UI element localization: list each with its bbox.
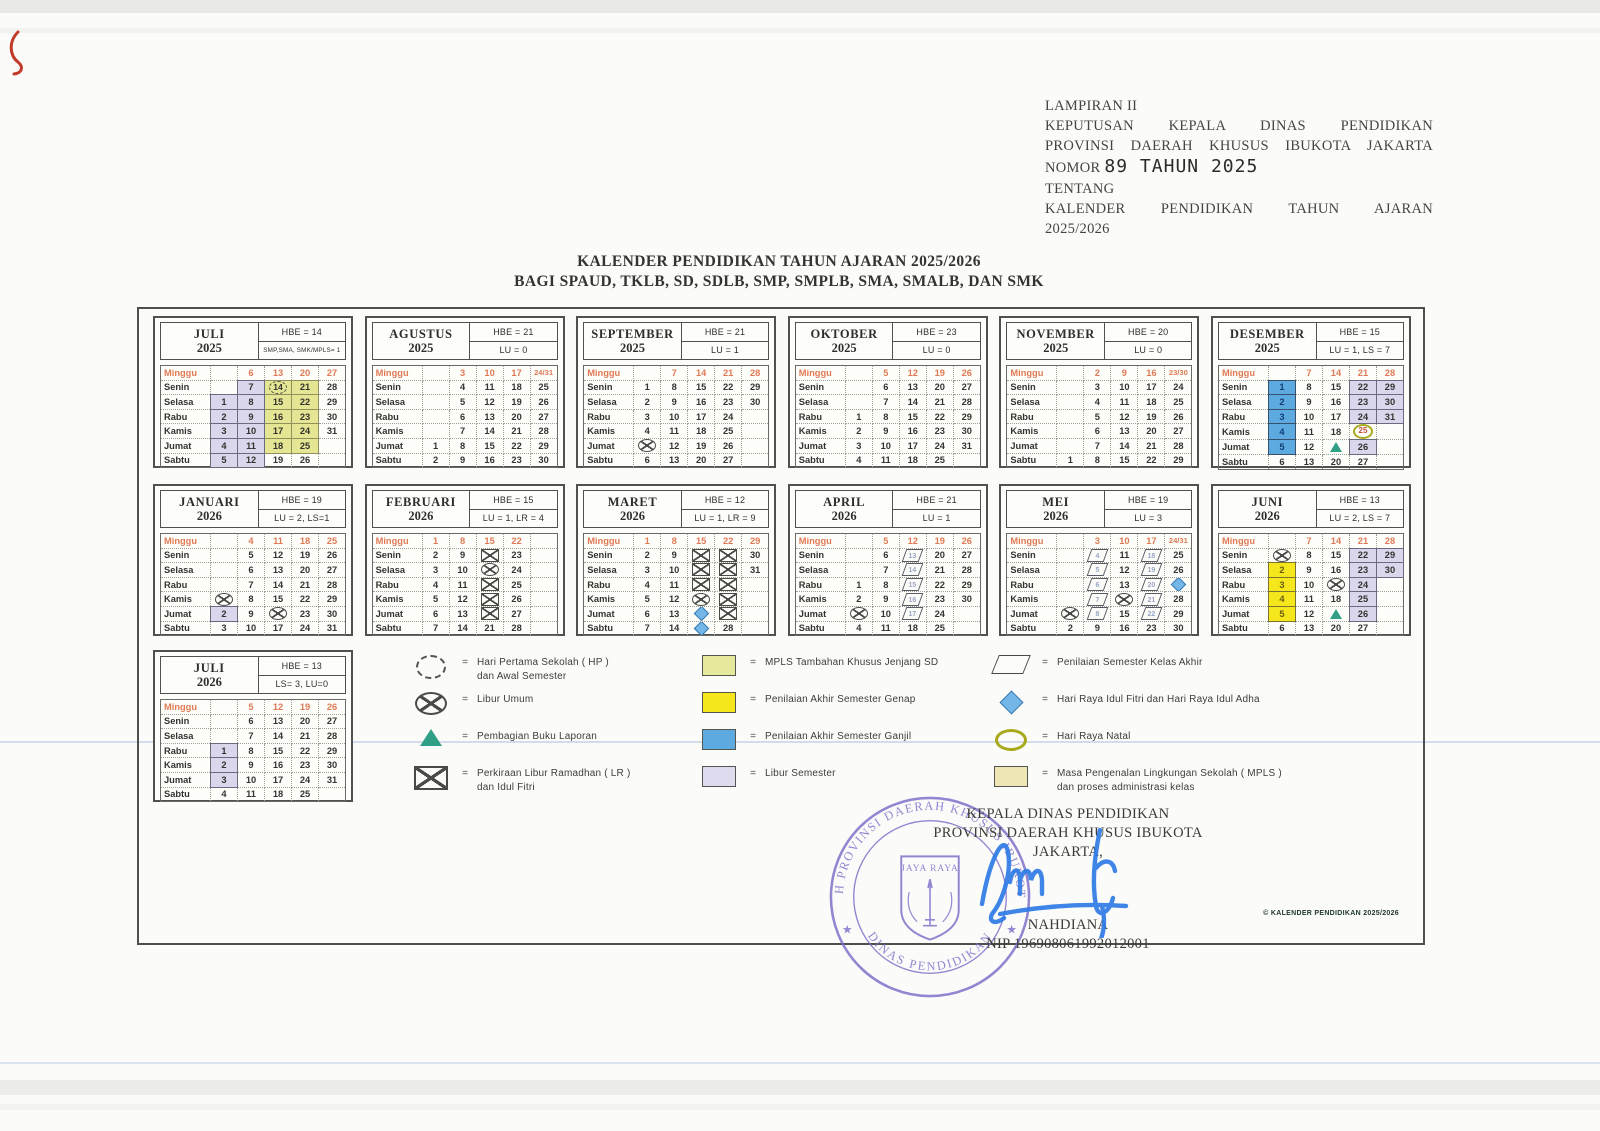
legend-item: =Hari Pertama Sekolah ( HP )dan Awal Sem… <box>409 654 697 691</box>
ramadhan-leave-icon <box>719 549 737 562</box>
day-row-label: Jumat <box>161 606 211 621</box>
month-stats-box: HBE = 21LU = 0 <box>470 323 556 359</box>
legend-icon-box <box>697 765 741 787</box>
month-stat-lu: LU = 1, LR = 4 <box>470 510 556 528</box>
day-cell: 12 <box>265 548 292 563</box>
tentang-line2: 2025/2026 <box>1045 219 1433 239</box>
day-cell <box>530 592 557 607</box>
day-row-selasa: Selasa4111825 <box>1007 395 1192 410</box>
month-stat-lu: LU = 0 <box>470 342 556 360</box>
nomor-value: 89 TAHUN 2025 <box>1104 156 1258 177</box>
day-row-jumat: Jumat51226 <box>1218 606 1403 621</box>
day-cell <box>1376 454 1403 469</box>
month-name-box: AGUSTUS2025 <box>373 323 471 359</box>
month-name: DESEMBER <box>1230 327 1305 341</box>
day-cell <box>319 453 346 468</box>
scan-band <box>0 28 1600 33</box>
final-class-exam-icon: 14 <box>902 563 924 576</box>
day-row-rabu: Rabu18152229 <box>795 409 980 424</box>
day-cell: 5 <box>872 534 899 549</box>
day-row-label: Kamis <box>372 424 422 439</box>
day-cell: 19 <box>926 366 953 381</box>
day-cell: 29 <box>1376 548 1403 563</box>
day-row-minggu: Minggu3101724/31 <box>372 366 557 381</box>
day-row-selasa: Selasa5121926 <box>372 395 557 410</box>
day-cell: 23 <box>1349 563 1376 578</box>
month-stats-box: HBE = 20LU = 0 <box>1105 323 1191 359</box>
day-row-label: Kamis <box>584 424 634 439</box>
month-stats-box: HBE = 15LU = 1, LS = 7 <box>1317 323 1403 359</box>
day-row-rabu: Rabu310172431 <box>1218 409 1403 424</box>
day-cell: 20 <box>503 409 530 424</box>
legend-label: Hari Raya Idul Fitri dan Hari Raya Idul … <box>1057 691 1260 707</box>
month-stat-hbe: HBE = 14 <box>259 323 345 342</box>
day-cell: 31 <box>319 621 346 636</box>
day-cell: 21 <box>476 621 503 636</box>
day-cell: 9 <box>238 409 265 424</box>
day-cell: 15 <box>476 534 503 549</box>
day-row-label: Rabu <box>795 577 845 592</box>
legend-equals: = <box>1033 654 1057 668</box>
month-grid: Minggu5121926Senin6132027Selasa7142128Ra… <box>795 533 981 636</box>
day-cell <box>715 577 742 592</box>
day-cell: 2 <box>422 548 449 563</box>
day-cell: 9 <box>238 758 265 773</box>
day-cell: 4 <box>211 787 238 802</box>
day-cell <box>476 548 503 563</box>
month-stat-hbe: HBE = 21 <box>893 491 979 510</box>
christmas-icon: 25 <box>1353 424 1373 439</box>
day-cell: 28 <box>530 424 557 439</box>
month-name-box: DESEMBER2025 <box>1219 323 1317 359</box>
day-cell <box>530 621 557 636</box>
day-row-label: Rabu <box>372 409 422 424</box>
day-cell: 9 <box>1295 563 1322 578</box>
day-cell <box>688 606 715 621</box>
ramadhan-leave-icon <box>719 607 737 620</box>
day-row-label: Sabtu <box>795 621 845 636</box>
month-stat-lu: LS= 3, LU=0 <box>259 676 345 694</box>
day-cell: 18 <box>1138 395 1165 410</box>
day-row-label: Selasa <box>161 563 211 578</box>
legend-column-3: =Penilaian Semester Kelas Akhir=Hari Ray… <box>989 654 1409 802</box>
day-cell: 30 <box>1376 563 1403 578</box>
day-cell: 14 <box>899 563 926 578</box>
month-year: 2026 <box>620 509 645 523</box>
day-row-rabu: Rabu411 <box>584 577 769 592</box>
day-row-label: Rabu <box>161 743 211 758</box>
month-card-header: OKTOBER2025HBE = 23LU = 0 <box>795 322 981 360</box>
day-cell <box>1322 440 1349 455</box>
day-row-label: Rabu <box>161 409 211 424</box>
day-cell: 19 <box>265 453 292 468</box>
legend-icon-box <box>409 765 453 790</box>
day-row-sabtu: Sabtu71428 <box>584 621 769 636</box>
tentang-label: TENTANG <box>1045 179 1433 199</box>
day-cell: 19 <box>926 534 953 549</box>
day-cell: 29 <box>742 380 769 395</box>
day-row-label: Sabtu <box>1218 621 1268 636</box>
day-cell: 25 <box>292 787 319 802</box>
day-row-jumat: Jumat18152229 <box>372 438 557 453</box>
ramadhan-leave-icon <box>692 563 710 576</box>
day-cell <box>953 606 980 621</box>
day-row-label: Kamis <box>1218 424 1268 440</box>
month-name: OKTOBER <box>811 327 878 341</box>
day-cell: 4 <box>238 534 265 549</box>
day-cell: 15 <box>688 534 715 549</box>
final-class-exam-icon: 17 <box>902 607 924 620</box>
day-cell <box>319 787 346 802</box>
day-row-label: Kamis <box>584 592 634 607</box>
month-stat-hbe: HBE = 13 <box>1317 491 1403 510</box>
day-cell: 18 <box>503 380 530 395</box>
day-cell: 7 <box>238 577 265 592</box>
day-cell <box>211 714 238 729</box>
month-card-header: JUNI2026HBE = 13LU = 2, LS = 7 <box>1218 490 1404 528</box>
day-row-rabu: Rabu5121926 <box>1007 409 1192 424</box>
day-cell: 24 <box>292 772 319 787</box>
day-cell: 31 <box>742 563 769 578</box>
day-row-label: Selasa <box>372 563 422 578</box>
day-cell <box>1057 606 1084 621</box>
day-cell: 22 <box>292 743 319 758</box>
day-cell: 12 <box>265 700 292 715</box>
day-row-label: Selasa <box>1007 563 1057 578</box>
day-row-label: Sabtu <box>161 787 211 802</box>
day-cell: 17 <box>899 606 926 621</box>
day-cell: 5 <box>211 453 238 468</box>
month-grid: Minggu5121926Senin6132027Selasa7142128Ra… <box>160 699 346 802</box>
day-cell: 13 <box>1111 424 1138 439</box>
day-row-jumat: Jumat51226 <box>1218 440 1403 455</box>
legend-equals: = <box>1033 691 1057 705</box>
day-cell: 3 <box>1084 534 1111 549</box>
day-cell <box>1268 534 1295 549</box>
day-row-selasa: Selasa6132027 <box>161 563 346 578</box>
day-cell <box>1057 438 1084 453</box>
day-row-rabu: Rabu41125 <box>372 577 557 592</box>
day-cell: 1 <box>422 438 449 453</box>
day-cell: 4 <box>449 380 476 395</box>
month-card-header: JULI2026HBE = 13LS= 3, LU=0 <box>160 656 346 694</box>
day-cell <box>1376 606 1403 621</box>
day-cell: 11 <box>872 621 899 636</box>
legend-equals: = <box>1033 728 1057 742</box>
day-cell: 19 <box>503 395 530 410</box>
day-cell: 29 <box>953 409 980 424</box>
day-cell: 8 <box>661 534 688 549</box>
day-cell: 20 <box>926 548 953 563</box>
day-cell <box>742 453 769 468</box>
day-cell: 25 <box>319 534 346 549</box>
ramadhan-leave-icon <box>719 563 737 576</box>
day-cell <box>742 424 769 439</box>
day-cell: 8 <box>238 592 265 607</box>
legend-icon-box <box>697 691 741 713</box>
month-stat-lu: LU = 2, LS=1 <box>259 510 345 528</box>
day-cell: 26 <box>1165 563 1192 578</box>
christmas-icon <box>995 729 1027 751</box>
day-cell: 1 <box>634 534 661 549</box>
day-row-jumat: Jumat101724 <box>795 606 980 621</box>
day-cell: 11 <box>661 424 688 439</box>
day-cell: 14 <box>1322 366 1349 381</box>
day-cell: 8 <box>1295 380 1322 395</box>
day-cell: 1 <box>634 380 661 395</box>
day-cell <box>845 534 872 549</box>
month-grid: Minggu6132027Senin7142128Selasa18152229R… <box>160 365 346 468</box>
public-holiday-icon <box>1061 607 1079 620</box>
day-cell: 15 <box>265 395 292 410</box>
day-row-jumat: Jumat8152229 <box>1007 606 1192 621</box>
month-grid: Minggu7142128Senin18152229Selasa29162330… <box>1218 365 1404 470</box>
day-cell: 23 <box>1349 395 1376 410</box>
month-stats-box: HBE = 19LU = 2, LS=1 <box>259 491 345 527</box>
final-class-exam-icon: 7 <box>1087 593 1109 606</box>
day-row-label: Sabtu <box>1007 621 1057 636</box>
day-cell: 28 <box>1165 592 1192 607</box>
day-cell: 13 <box>265 366 292 381</box>
day-row-label: Kamis <box>161 758 211 773</box>
day-cell: 10 <box>1111 534 1138 549</box>
day-row-jumat: Jumat310172431 <box>161 772 346 787</box>
day-row-label: Rabu <box>1218 577 1268 592</box>
legend-equals: = <box>453 765 477 779</box>
day-row-label: Sabtu <box>372 621 422 636</box>
month-card-header: APRIL2026HBE = 21LU = 1 <box>795 490 981 528</box>
day-row-minggu: Minggu7142128 <box>584 366 769 381</box>
day-cell: 5 <box>238 548 265 563</box>
tentang-line1: KALENDER PENDIDIKAN TAHUN AJARAN <box>1045 199 1433 219</box>
day-cell <box>422 366 449 381</box>
day-cell: 22 <box>1349 548 1376 563</box>
day-cell <box>1057 366 1084 381</box>
day-cell: 9 <box>1111 366 1138 381</box>
day-cell: 18 <box>1322 592 1349 607</box>
day-row-label: Kamis <box>161 424 211 439</box>
ramadhan-leave-icon <box>692 578 710 591</box>
day-cell: 24 <box>926 606 953 621</box>
day-cell: 12 <box>449 592 476 607</box>
public-holiday-icon <box>269 607 287 620</box>
day-cell: 9 <box>872 424 899 439</box>
month-stats-box: HBE = 21LU = 1 <box>893 491 979 527</box>
day-row-label: Jumat <box>584 606 634 621</box>
day-cell <box>1376 440 1403 455</box>
day-cell: 9 <box>661 548 688 563</box>
day-cell: 21 <box>292 380 319 395</box>
day-row-kamis: Kamis51226 <box>372 592 557 607</box>
day-row-label: Senin <box>372 380 422 395</box>
day-cell: 23 <box>292 606 319 621</box>
day-row-kamis: Kamis8152229 <box>161 592 346 607</box>
day-row-label: Selasa <box>1218 563 1268 578</box>
day-cell: 25 <box>926 453 953 468</box>
day-cell: 2 <box>845 592 872 607</box>
day-cell: 21 <box>926 563 953 578</box>
day-cell: 12 <box>661 438 688 453</box>
day-cell <box>845 563 872 578</box>
day-cell: 24/31 <box>1165 534 1192 549</box>
day-cell: 28 <box>319 729 346 744</box>
day-cell: 20 <box>688 453 715 468</box>
day-cell <box>211 577 238 592</box>
day-cell: 15 <box>265 592 292 607</box>
month-year: 2026 <box>408 509 433 523</box>
day-row-label: Minggu <box>584 366 634 381</box>
day-cell: 2 <box>211 409 238 424</box>
month-stats-box: HBE = 21LU = 1 <box>682 323 768 359</box>
day-cell: 3 <box>1268 577 1295 592</box>
day-cell: 9 <box>1084 621 1111 636</box>
legend-equals: = <box>453 728 477 742</box>
final-class-exam-icon: 16 <box>902 593 924 606</box>
month-year: 2026 <box>1043 509 1068 523</box>
day-cell: 14 <box>265 729 292 744</box>
day-cell: 12 <box>1295 606 1322 621</box>
day-cell <box>265 606 292 621</box>
day-cell: 16 <box>688 395 715 410</box>
day-cell <box>1376 577 1403 592</box>
day-cell: 3 <box>449 366 476 381</box>
day-cell: 4 <box>634 424 661 439</box>
day-cell: 7 <box>661 366 688 381</box>
day-cell: 6 <box>634 606 661 621</box>
day-row-jumat: Jumat121926 <box>584 438 769 453</box>
day-cell <box>634 366 661 381</box>
day-row-label: Sabtu <box>161 621 211 636</box>
day-cell: 9 <box>449 548 476 563</box>
day-cell: 13 <box>1111 577 1138 592</box>
day-cell: 1 <box>1268 380 1295 395</box>
day-cell: 1 <box>845 577 872 592</box>
day-row-senin: Senin6132027 <box>795 548 980 563</box>
report-distribution-icon <box>1330 442 1342 452</box>
day-cell: 15 <box>1322 548 1349 563</box>
month-stat-lu: LU = 1, LR = 9 <box>682 510 768 528</box>
report-distribution-icon <box>1330 609 1342 619</box>
final-class-exam-icon: 22 <box>1141 607 1163 620</box>
day-row-minggu: Minggu5121926 <box>161 700 346 715</box>
day-cell: 3 <box>845 438 872 453</box>
month-stat-hbe: HBE = 20 <box>1105 323 1191 342</box>
day-cell: 25 <box>1165 548 1192 563</box>
decree-header: LAMPIRAN II KEPUTUSAN KEPALA DINAS PENDI… <box>1045 96 1433 239</box>
day-cell: 25 <box>1165 395 1192 410</box>
day-row-senin: Senin18152229 <box>1218 380 1403 395</box>
day-cell: 14 <box>265 380 292 395</box>
day-cell: 21 <box>503 424 530 439</box>
day-cell: 24 <box>292 621 319 636</box>
day-cell <box>211 700 238 715</box>
legend-label: Libur Semester <box>765 765 836 781</box>
month-name-box: APRIL2026 <box>796 491 894 527</box>
day-cell: 30 <box>319 606 346 621</box>
day-cell: 10 <box>872 606 899 621</box>
month-name-box: JULI2025 <box>161 323 259 359</box>
day-cell: 20 <box>926 380 953 395</box>
day-cell: 24 <box>926 438 953 453</box>
day-row-label: Senin <box>1007 548 1057 563</box>
day-cell: 11 <box>1111 395 1138 410</box>
day-row-senin: Senin2923 <box>372 548 557 563</box>
day-cell <box>1057 548 1084 563</box>
legend-equals: = <box>741 728 765 742</box>
day-cell: 28 <box>1376 366 1403 381</box>
day-cell <box>530 577 557 592</box>
day-cell: 15 <box>265 743 292 758</box>
day-cell: 22 <box>926 577 953 592</box>
month-name: MARET <box>608 495 658 509</box>
day-row-label: Sabtu <box>372 453 422 468</box>
public-holiday-icon <box>850 607 868 620</box>
day-cell <box>476 577 503 592</box>
ramadhan-leave-icon <box>719 593 737 606</box>
day-cell: 7 <box>422 621 449 636</box>
day-cell: 24 <box>503 563 530 578</box>
day-cell: 10 <box>872 438 899 453</box>
footnote: © KALENDER PENDIDIKAN 2025/2026 <box>1263 910 1399 917</box>
final-class-exam-icon: 8 <box>1087 607 1109 620</box>
day-row-label: Minggu <box>161 534 211 549</box>
day-cell: 3 <box>1268 409 1295 424</box>
day-row-selasa: Selasa7142128 <box>795 395 980 410</box>
day-cell <box>715 592 742 607</box>
day-cell: 19 <box>1138 409 1165 424</box>
day-row-label: Minggu <box>1007 366 1057 381</box>
day-cell: 26 <box>503 592 530 607</box>
color-swatch <box>994 766 1028 787</box>
day-cell <box>1376 424 1403 440</box>
day-cell: 6 <box>449 409 476 424</box>
day-cell: 17 <box>265 424 292 439</box>
day-row-sabtu: Sabtu310172431 <box>161 621 346 636</box>
day-row-label: Sabtu <box>584 621 634 636</box>
month-stats-box: HBE = 19LU = 3 <box>1105 491 1191 527</box>
day-cell <box>476 592 503 607</box>
day-cell: 21 <box>926 395 953 410</box>
day-cell: 26 <box>292 453 319 468</box>
day-cell: 16 <box>265 758 292 773</box>
day-cell: 6 <box>1268 621 1295 636</box>
day-row-kamis: Kamis6132027 <box>1007 424 1192 439</box>
day-cell <box>1322 577 1349 592</box>
day-row-minggu: Minggu5121926 <box>795 366 980 381</box>
day-cell: 5 <box>634 592 661 607</box>
month-card-header: NOVEMBER2025HBE = 20LU = 0 <box>1006 322 1192 360</box>
day-cell: 25 <box>292 438 319 453</box>
lampiran-label: LAMPIRAN II <box>1045 96 1433 116</box>
day-cell: 29 <box>319 743 346 758</box>
day-cell: 22 <box>503 438 530 453</box>
eid-icon <box>693 621 709 636</box>
day-row-label: Sabtu <box>584 453 634 468</box>
legend-label: Penilaian Akhir Semester Ganjil <box>765 728 911 744</box>
day-cell <box>211 534 238 549</box>
final-class-exam-icon <box>991 655 1031 674</box>
day-cell: 9 <box>238 606 265 621</box>
day-row-senin: Senin3101724 <box>1007 380 1192 395</box>
month-card-header: AGUSTUS2025HBE = 21LU = 0 <box>372 322 558 360</box>
red-pen-mark <box>4 28 30 76</box>
calendar-row-3-card: JULI2026HBE = 13LS= 3, LU=0Minggu5121926… <box>153 650 353 802</box>
day-row-label: Senin <box>1007 380 1057 395</box>
month-grid: Minggu3101724/31Senin4111825Selasa512192… <box>372 365 558 468</box>
month-stats-box: HBE = 13LS= 3, LU=0 <box>259 657 345 693</box>
month-card-maret-2026: MARET2026HBE = 12LU = 1, LR = 9Minggu181… <box>576 484 776 636</box>
day-cell <box>953 621 980 636</box>
